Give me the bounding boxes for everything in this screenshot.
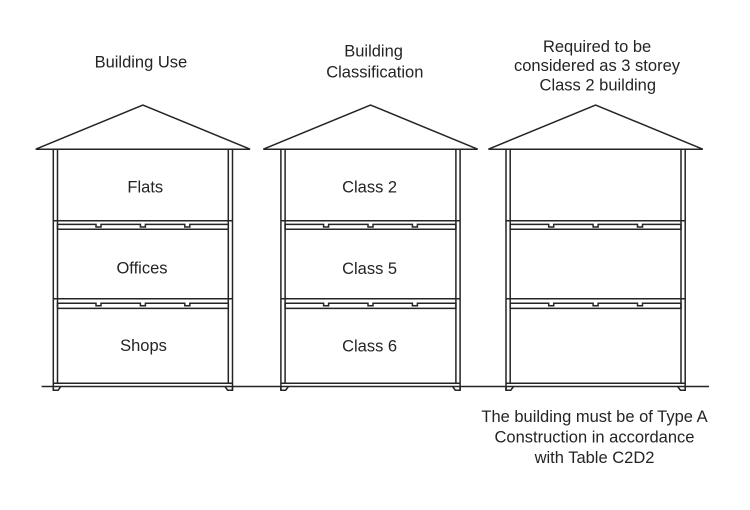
svg-text:Class 2: Class 2 <box>342 179 397 197</box>
svg-text:Classification: Classification <box>326 63 423 81</box>
svg-text:Flats: Flats <box>127 178 163 196</box>
svg-text:considered as 3 storey: considered as 3 storey <box>514 57 681 75</box>
svg-text:Required to be: Required to be <box>543 38 651 56</box>
svg-text:Offices: Offices <box>116 260 167 278</box>
svg-text:The building must be of Type A: The building must be of Type A <box>481 408 707 426</box>
svg-text:Shops: Shops <box>120 337 167 355</box>
svg-text:Class 5: Class 5 <box>342 260 397 278</box>
svg-text:Class 2 building: Class 2 building <box>540 76 656 94</box>
svg-text:Building: Building <box>344 43 403 61</box>
svg-text:Construction in accordance: Construction in accordance <box>495 428 695 446</box>
svg-text:with Table C2D2: with Table C2D2 <box>534 449 655 467</box>
svg-text:Building Use: Building Use <box>95 53 188 71</box>
svg-text:Class 6: Class 6 <box>342 337 397 355</box>
